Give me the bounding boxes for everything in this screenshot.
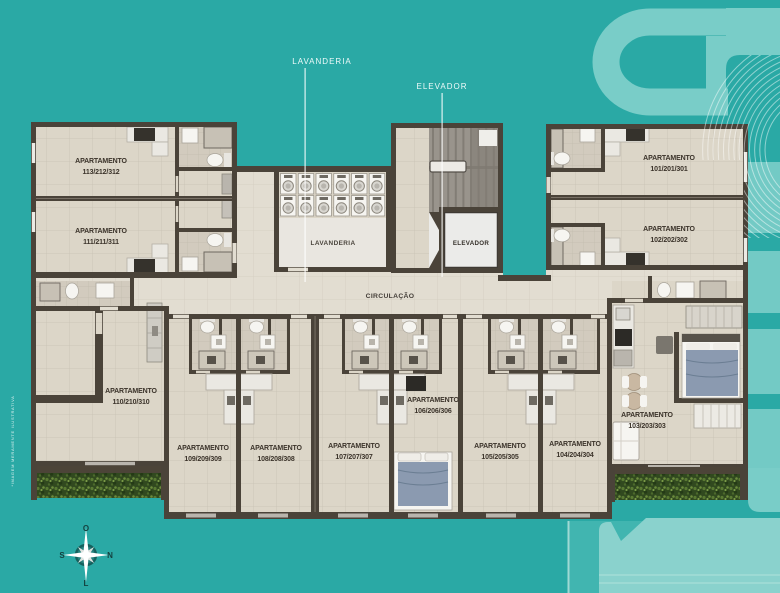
svg-text:ELEVADOR: ELEVADOR bbox=[417, 82, 468, 91]
svg-text:101/201/301: 101/201/301 bbox=[650, 166, 688, 173]
svg-text:APARTAMENTO: APARTAMENTO bbox=[643, 155, 695, 162]
svg-text:APARTAMENTO: APARTAMENTO bbox=[177, 445, 229, 452]
svg-text:104/204/304: 104/204/304 bbox=[556, 452, 594, 459]
svg-text:APARTAMENTO: APARTAMENTO bbox=[474, 443, 526, 450]
svg-text:102/202/302: 102/202/302 bbox=[650, 237, 688, 244]
svg-text:APARTAMENTO: APARTAMENTO bbox=[75, 158, 127, 165]
svg-text:APARTAMENTO: APARTAMENTO bbox=[75, 228, 127, 235]
svg-text:N: N bbox=[107, 551, 113, 560]
svg-text:APARTAMENTO: APARTAMENTO bbox=[407, 397, 459, 404]
svg-text:CIRCULAÇÃO: CIRCULAÇÃO bbox=[366, 291, 415, 300]
svg-text:ELEVADOR: ELEVADOR bbox=[453, 240, 490, 247]
svg-text:108/208/308: 108/208/308 bbox=[257, 456, 295, 463]
svg-text:O: O bbox=[83, 524, 89, 533]
svg-text:107/207/307: 107/207/307 bbox=[335, 454, 373, 461]
svg-text:113/212/312: 113/212/312 bbox=[83, 169, 120, 176]
svg-text:APARTAMENTO: APARTAMENTO bbox=[250, 445, 302, 452]
svg-text:111/211/311: 111/211/311 bbox=[83, 239, 119, 246]
svg-text:106/206/306: 106/206/306 bbox=[414, 408, 452, 415]
svg-text:109/209/309: 109/209/309 bbox=[184, 456, 222, 463]
svg-text:APARTAMENTO: APARTAMENTO bbox=[643, 226, 695, 233]
svg-text:L: L bbox=[84, 579, 89, 588]
svg-text:*IMAGEM MERAMENTE ILUSTRATIVA: *IMAGEM MERAMENTE ILUSTRATIVA bbox=[10, 395, 15, 486]
svg-text:APARTAMENTO: APARTAMENTO bbox=[328, 443, 380, 450]
svg-text:LAVANDERIA: LAVANDERIA bbox=[292, 57, 352, 66]
svg-text:S: S bbox=[59, 551, 65, 560]
svg-text:103/203/303: 103/203/303 bbox=[628, 423, 666, 430]
svg-text:APARTAMENTO: APARTAMENTO bbox=[621, 412, 673, 419]
svg-text:110/210/310: 110/210/310 bbox=[113, 399, 150, 406]
svg-text:APARTAMENTO: APARTAMENTO bbox=[105, 388, 157, 395]
svg-text:105/205/305: 105/205/305 bbox=[481, 454, 519, 461]
svg-text:APARTAMENTO: APARTAMENTO bbox=[549, 441, 601, 448]
svg-text:LAVANDERIA: LAVANDERIA bbox=[311, 240, 356, 247]
